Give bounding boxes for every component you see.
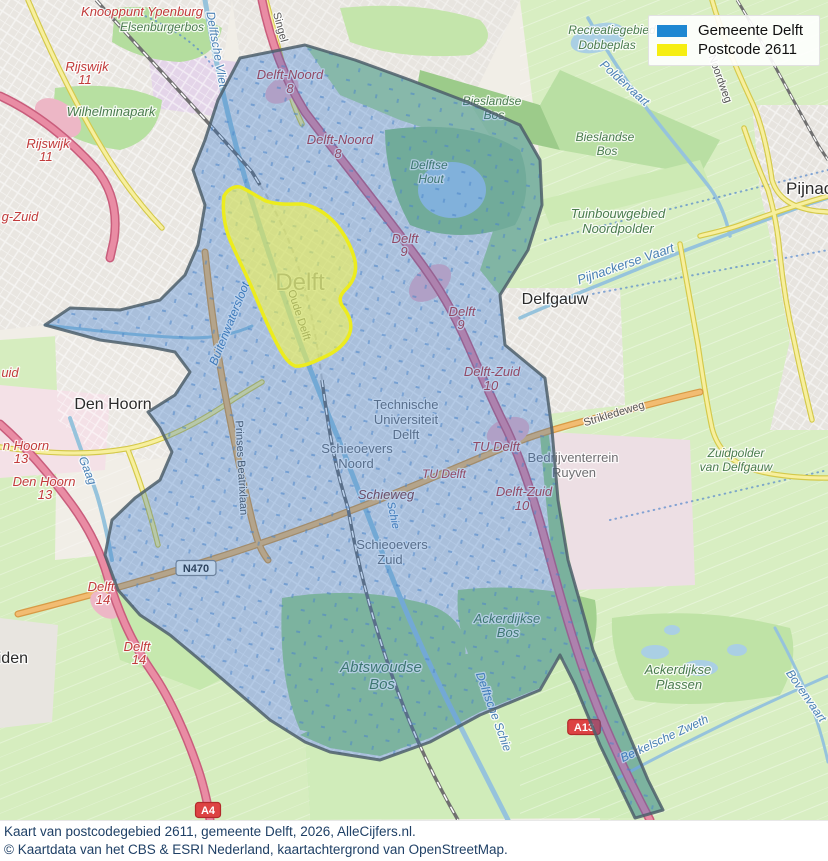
road-shield-a4: A4: [196, 803, 221, 818]
map-label: uid: [1, 365, 19, 380]
map-caption: Kaart van postcodegebied 2611, gemeente …: [0, 820, 828, 861]
map-label: 11: [39, 149, 53, 164]
map-screenshot: Knooppunt YpenburgElsenburgerbosSingelRi…: [0, 0, 828, 861]
map-label: Elsenburgerbos: [120, 20, 204, 34]
map-viewport[interactable]: Knooppunt YpenburgElsenburgerbosSingelRi…: [0, 0, 828, 820]
map-label: Bos: [597, 144, 618, 158]
map-label: 13: [38, 487, 53, 502]
map-label: Wilhelminapark: [67, 104, 157, 119]
map-label: Noordpolder: [582, 221, 654, 236]
legend-label-gemeente: Gemeente Delft: [698, 22, 803, 39]
map-label: 11: [78, 72, 92, 87]
legend-row-gemeente: Gemeente Delft: [657, 21, 811, 40]
map-label: Tuinbouwgebied: [571, 206, 666, 221]
map-label: 14: [96, 592, 110, 607]
legend-row-postcode: Postcode 2611: [657, 40, 811, 59]
attribution-line: © Kaartdata van het CBS & ESRI Nederland…: [4, 841, 828, 859]
caption-title: Kaart van postcodegebied 2611, gemeente …: [4, 823, 828, 841]
map-canvas[interactable]: Knooppunt YpenburgElsenburgerbosSingelRi…: [0, 0, 828, 820]
map-label: Bieslandse: [576, 130, 635, 144]
map-label: Schipluiden: [0, 650, 28, 667]
map-label: Delfgauw: [522, 291, 589, 308]
map-label: Recreatiegebied: [568, 23, 656, 37]
map-label: Zuidpolder: [707, 446, 766, 460]
gemeente-color-swatch: [657, 25, 687, 37]
legend-label-postcode: Postcode 2611: [698, 41, 797, 58]
map-label: Ackerdijkse: [644, 662, 711, 677]
map-label: 14: [132, 652, 146, 667]
postcode-color-swatch: [657, 44, 687, 56]
map-legend: Gemeente Delft Postcode 2611: [648, 15, 820, 66]
map-label: 13: [14, 451, 29, 466]
map-label: Pijnacker: [786, 179, 828, 198]
map-label: van Delfgauw: [700, 460, 774, 474]
svg-text:A4: A4: [201, 805, 216, 817]
map-label: Plassen: [656, 677, 702, 692]
map-label: g-Zuid: [2, 209, 40, 224]
map-label: Ruyven: [552, 465, 596, 480]
map-label: Den Hoorn: [74, 396, 151, 413]
map-label: Dobbeplas: [578, 38, 635, 52]
map-label: Knooppunt Ypenburg: [81, 4, 204, 19]
